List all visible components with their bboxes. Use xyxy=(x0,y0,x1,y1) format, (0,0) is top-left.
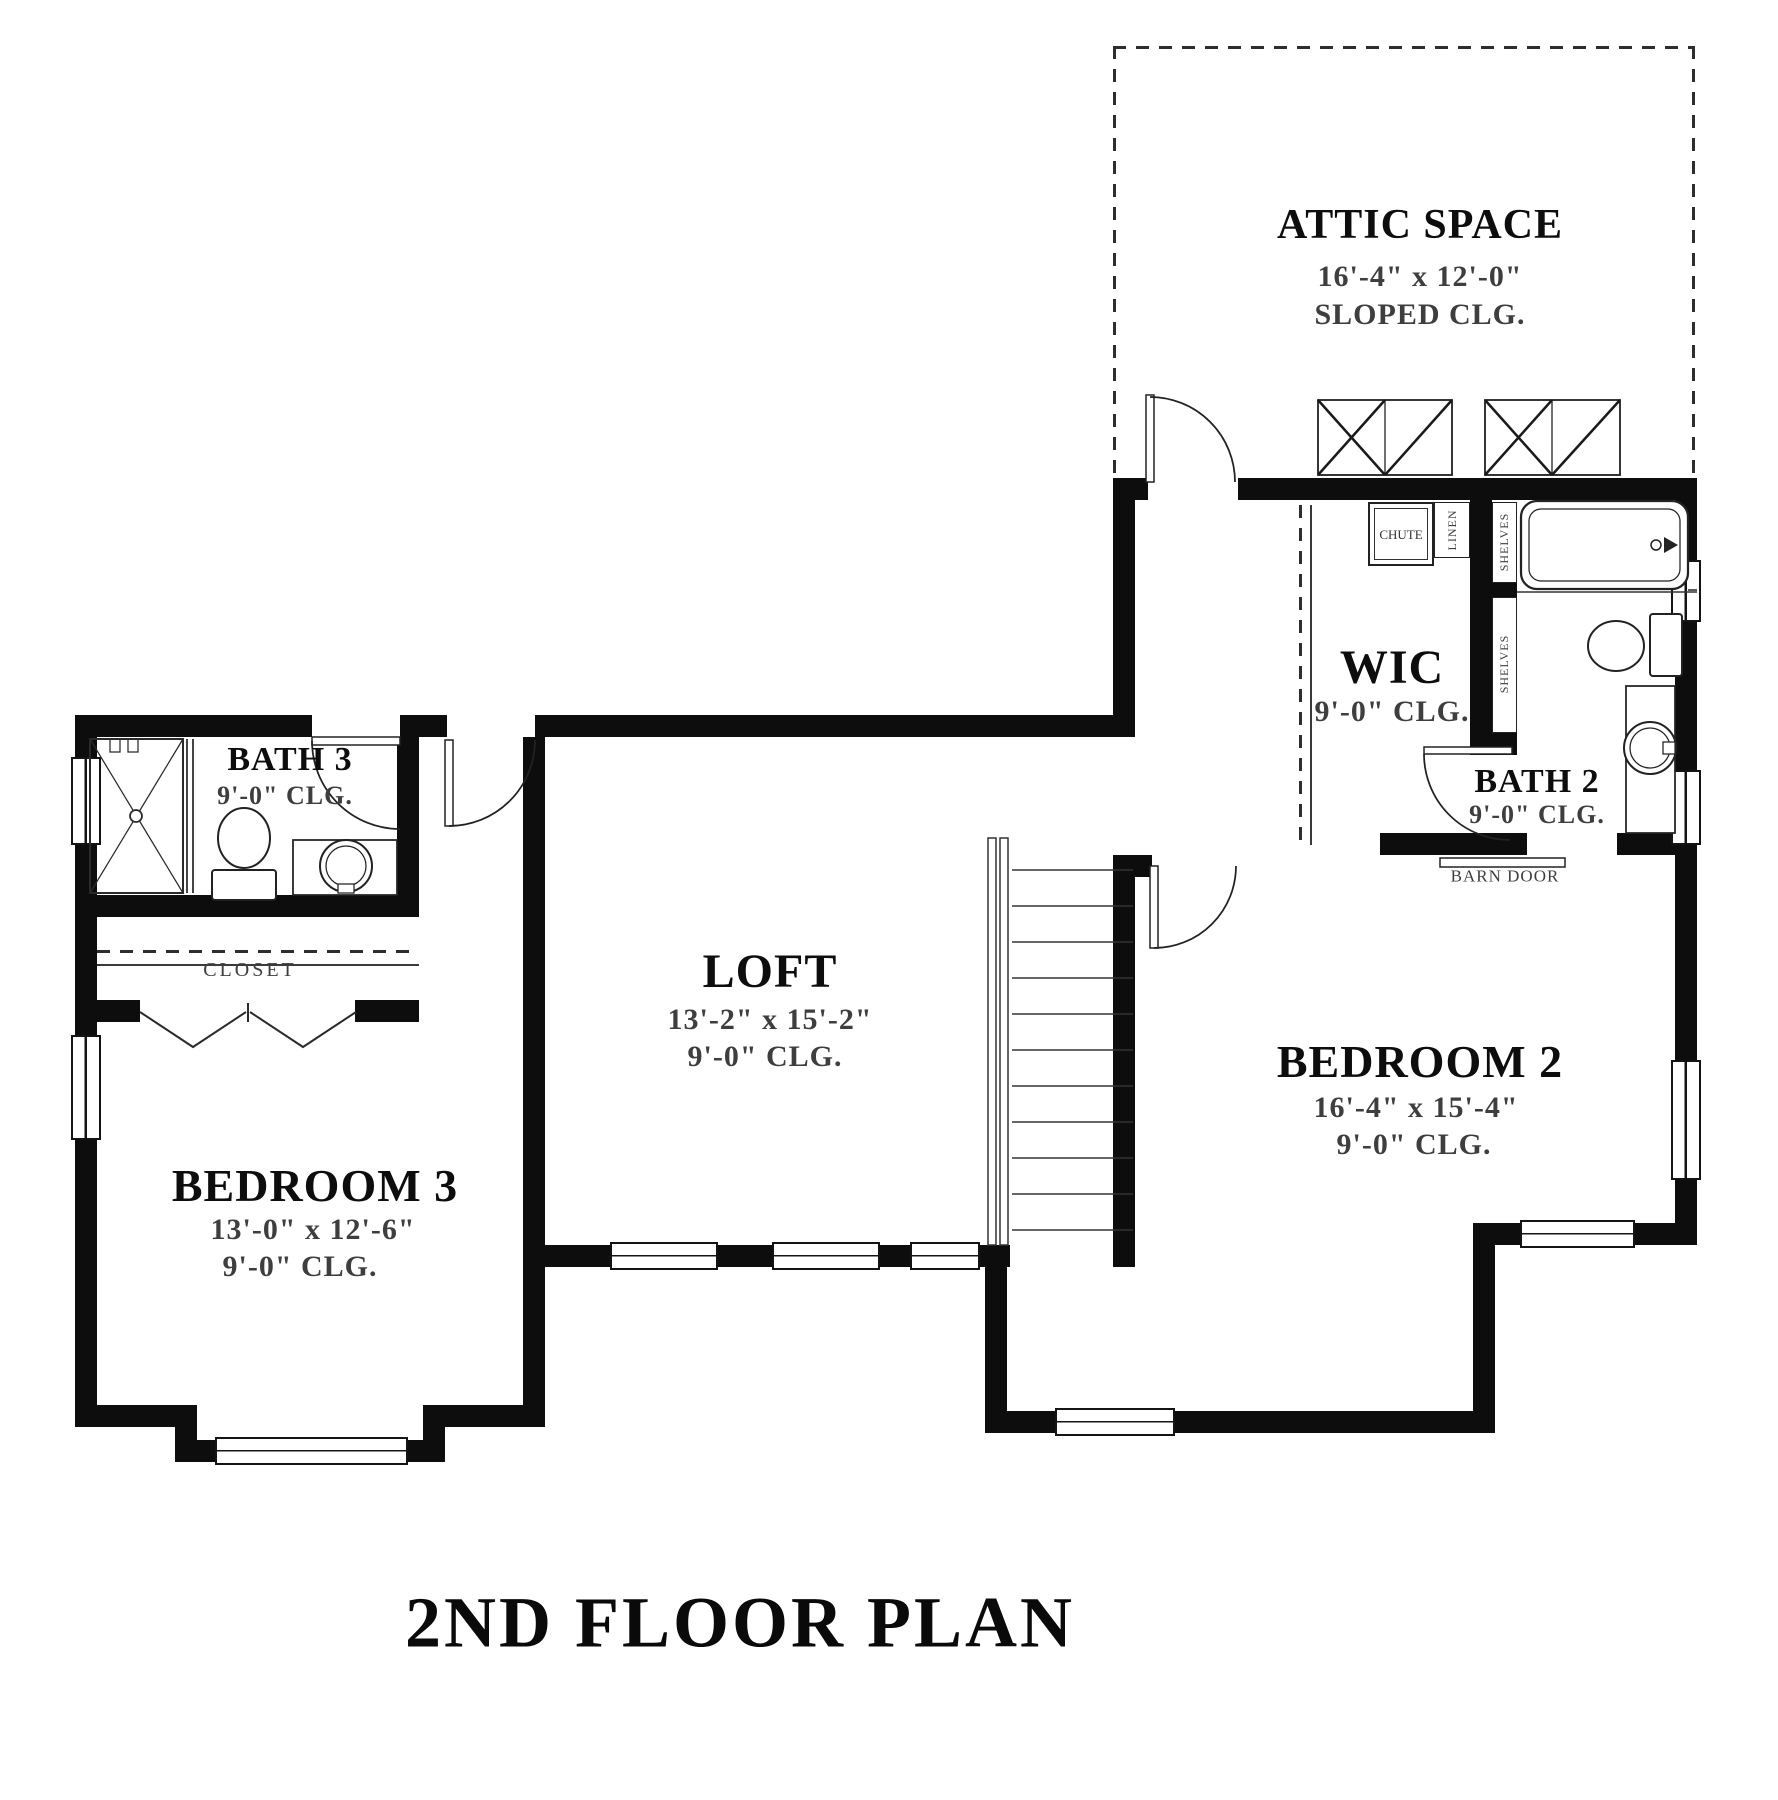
wall xyxy=(1470,583,1517,597)
room-label-bath3: BATH 3 xyxy=(227,743,352,777)
sink-bath2 xyxy=(1624,686,1676,833)
window-bath2-right-upper xyxy=(1671,560,1701,622)
ceiling-label-bedroom2: 9'-0" CLG. xyxy=(1337,1130,1492,1160)
attic-dashed-top xyxy=(1113,46,1695,49)
ceiling-label-loft: 9'-0" CLG. xyxy=(688,1042,843,1072)
room-label-loft: LOFT xyxy=(703,948,838,996)
dim-label-attic: 16'-4" x 12'-0" xyxy=(1318,262,1523,292)
wall xyxy=(1113,500,1135,733)
wic-rod-line xyxy=(1299,505,1302,845)
wall xyxy=(423,1405,545,1427)
wall xyxy=(1380,833,1527,855)
attic-door xyxy=(1146,395,1235,482)
shelves-upper-label: SHELVES xyxy=(1498,513,1510,572)
window-bedroom3-left xyxy=(71,1035,101,1140)
wall xyxy=(75,1000,140,1022)
bedroom2-door xyxy=(1150,866,1236,948)
window-bedroom2-step xyxy=(1520,1220,1635,1248)
wall xyxy=(400,715,447,737)
wall xyxy=(1113,855,1135,1267)
staircase xyxy=(988,838,1133,1245)
page-title: 2ND FLOOR PLAN xyxy=(405,1582,1075,1665)
dim-label-bedroom2: 16'-4" x 15'-4" xyxy=(1314,1093,1519,1123)
room-label-bath2: BATH 2 xyxy=(1474,765,1599,799)
barn-door-label: BARN DOOR xyxy=(1451,868,1560,885)
ceiling-label-bedroom3: 9'-0" CLG. xyxy=(223,1252,378,1282)
floor-plan: CHUTE xyxy=(0,0,1778,1800)
attic-dashed-left xyxy=(1113,46,1116,480)
window-bedroom2-right xyxy=(1671,1060,1701,1180)
window-bath2-right-lower xyxy=(1671,770,1701,845)
laundry-chute: CHUTE xyxy=(1368,502,1434,566)
wall xyxy=(1113,855,1152,877)
chute-label: CHUTE xyxy=(1379,528,1422,541)
room-label-closet: CLOSET xyxy=(203,960,297,980)
wall xyxy=(355,1000,419,1022)
wall xyxy=(985,1245,1007,1433)
wall xyxy=(1470,733,1517,755)
window-bedroom3-bay xyxy=(215,1437,408,1465)
window-bath3-left xyxy=(71,757,101,845)
toilet-bath2 xyxy=(1588,614,1682,676)
window-bedroom2-bottom xyxy=(1055,1408,1175,1436)
shelves-lower-label: SHELVES xyxy=(1498,635,1510,694)
room-label-bedroom2: BEDROOM 2 xyxy=(1277,1039,1563,1085)
laundry-chute-inner: CHUTE xyxy=(1374,508,1428,560)
window-loft-2 xyxy=(772,1242,880,1270)
ceiling-label-bath3: 9'-0" CLG. xyxy=(217,783,353,809)
wall xyxy=(1473,1223,1495,1433)
wall xyxy=(75,715,312,737)
ceiling-label-bath2: 9'-0" CLG. xyxy=(1469,802,1605,828)
attic-storage-boxes xyxy=(1318,400,1620,475)
dim-label-bedroom3: 13'-0" x 12'-6" xyxy=(211,1215,416,1245)
ceiling-label-wic: 9'-0" CLG. xyxy=(1315,697,1470,727)
wall xyxy=(1238,478,1697,500)
wall xyxy=(535,715,1135,737)
wall xyxy=(1470,597,1492,733)
sink-bath3 xyxy=(293,840,397,895)
attic-dashed-right xyxy=(1692,46,1695,480)
ceiling-label-attic: SLOPED CLG. xyxy=(1314,300,1525,330)
window-loft-1 xyxy=(610,1242,718,1270)
toilet-bath3 xyxy=(212,808,276,900)
closet-bifold-doors xyxy=(140,1003,356,1047)
room-label-bedroom3: BEDROOM 3 xyxy=(172,1163,458,1209)
room-label-wic: WIC xyxy=(1340,644,1444,692)
closet-rod-line xyxy=(97,950,419,953)
dim-label-loft: 13'-2" x 15'-2" xyxy=(668,1005,873,1035)
window-loft-3 xyxy=(910,1242,980,1270)
shower xyxy=(90,739,193,893)
room-label-attic: ATTIC SPACE xyxy=(1277,204,1563,246)
wall xyxy=(1113,478,1148,500)
wall xyxy=(523,737,545,1427)
bedroom3-door xyxy=(445,740,535,826)
wall xyxy=(397,737,419,917)
wall xyxy=(75,895,419,917)
wic-shelf-line xyxy=(1310,505,1312,845)
linen-label: LINEN xyxy=(1446,510,1458,551)
